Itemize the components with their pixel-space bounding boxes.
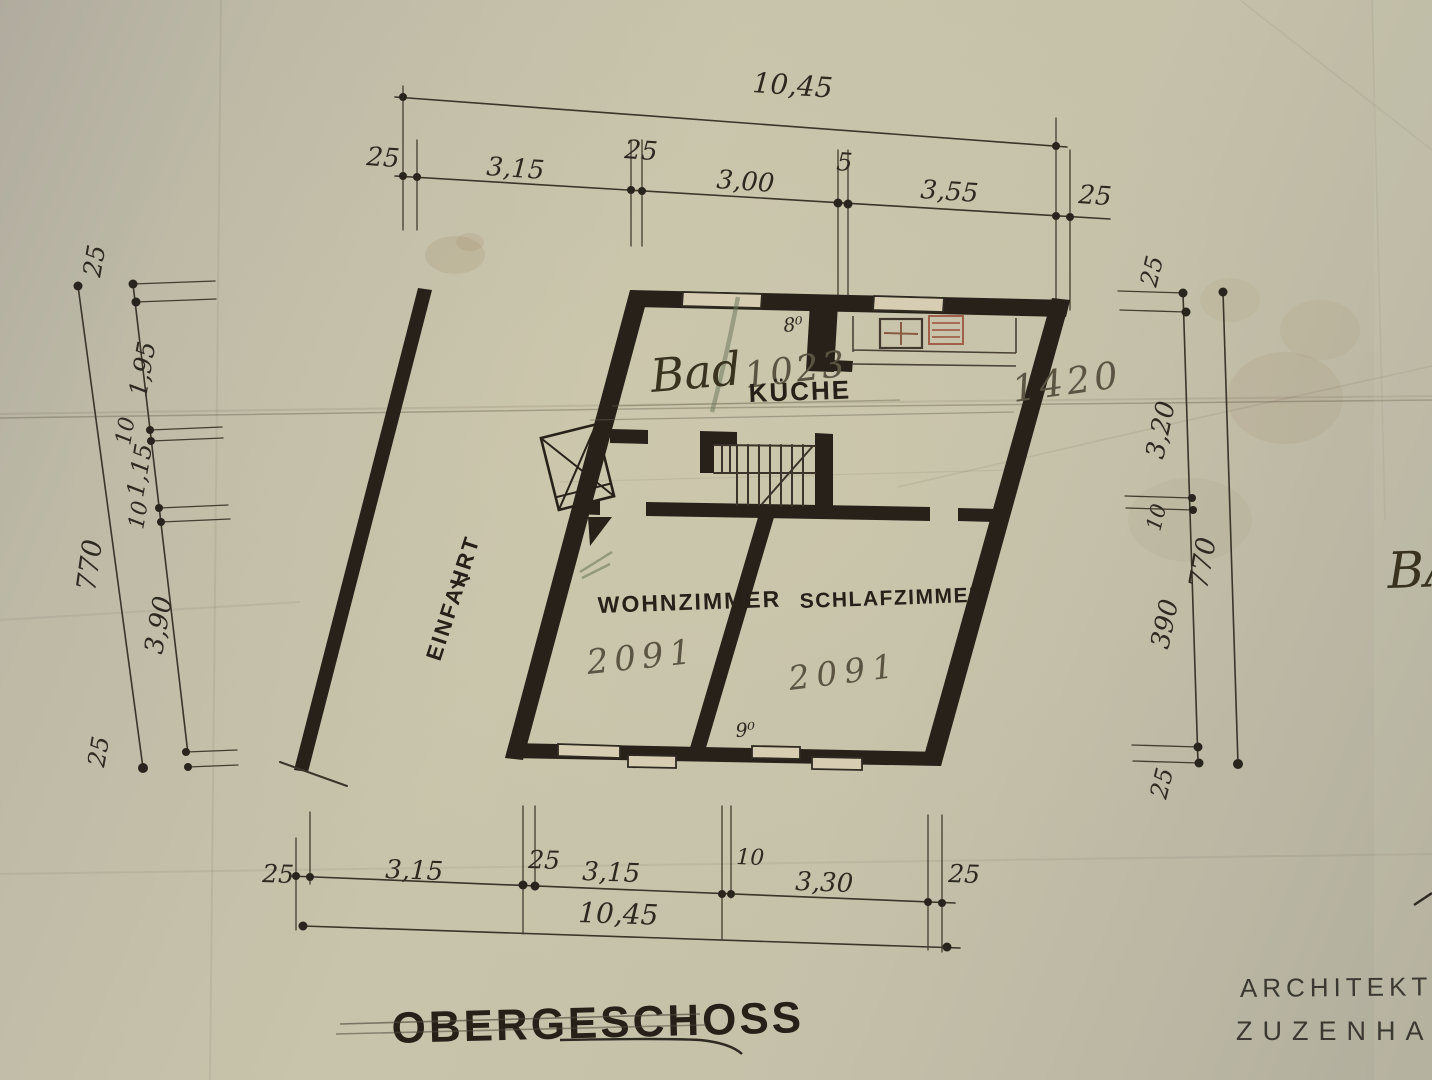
dim-top-25b: 25 bbox=[623, 135, 659, 167]
window-schlafzimmer-2 bbox=[812, 757, 862, 770]
stove-icon bbox=[929, 316, 963, 344]
einfahrt-wall bbox=[280, 288, 432, 786]
dim-top-315: 3,15 bbox=[486, 152, 546, 186]
room-label-einfahrt: EINFAHRT bbox=[421, 532, 485, 663]
dim-left-overall: 770 bbox=[71, 538, 109, 593]
dim-bot-25c: 25 bbox=[947, 859, 981, 889]
window-wohnzimmer-1 bbox=[558, 744, 620, 758]
dimension-chain-bottom: 25 3,15 25 3,15 10 3,30 25 10,45 bbox=[261, 806, 981, 952]
room-label-bad: Bad bbox=[647, 341, 743, 403]
stamp-line-2: ZUZENHAU bbox=[1236, 1016, 1432, 1046]
stamp-line-1: ARCHITEKTUR bbox=[1240, 971, 1432, 1003]
dim-top-355: 3,55 bbox=[920, 175, 980, 209]
dim-bot-25a: 25 bbox=[261, 859, 295, 889]
dim-top-overall: 10,45 bbox=[752, 66, 834, 105]
dim-bot-330: 3,30 bbox=[795, 867, 854, 899]
title-block: OBERGESCHOSS bbox=[336, 993, 805, 1054]
room-number-wohnzimmer: 2091 bbox=[584, 632, 699, 683]
dim-right-25b: 25 bbox=[1144, 765, 1179, 802]
room-label-schlafzimmer: SCHLAFZIMMER bbox=[799, 584, 986, 613]
page-title: OBERGESCHOSS bbox=[391, 993, 805, 1053]
dim-left-10b: 10 bbox=[124, 499, 153, 531]
dim-bot-25b: 25 bbox=[527, 845, 561, 875]
dim-left-25a: 25 bbox=[77, 243, 111, 280]
dim-top-25c: 25 bbox=[1077, 180, 1113, 212]
dim-right-320: 3,20 bbox=[1141, 399, 1182, 462]
dim-left-390: 3,90 bbox=[139, 594, 179, 656]
sink-icon bbox=[880, 319, 922, 348]
room-label-kueche: KÜCHE bbox=[748, 374, 851, 408]
window-bad bbox=[682, 292, 762, 308]
room-number-kueche: 1420 bbox=[1009, 353, 1124, 411]
window-wohnzimmer-2 bbox=[628, 755, 676, 768]
door-width-bad: 8⁰ bbox=[782, 313, 804, 337]
dim-left-195: 1,95 bbox=[123, 339, 161, 399]
dimension-chain-top: 10,45 25 3,15 25 3,00 5 3,55 25 bbox=[365, 66, 1113, 310]
dim-left-10a: 10 bbox=[111, 415, 140, 447]
dim-top-25a: 25 bbox=[365, 142, 401, 174]
dim-top-300: 3,00 bbox=[716, 165, 776, 199]
dim-right-25a: 25 bbox=[1134, 253, 1169, 290]
door-width-rooms: 9⁰ bbox=[735, 719, 757, 742]
dim-bot-315a: 3,15 bbox=[385, 855, 444, 887]
window-schlafzimmer-1 bbox=[752, 746, 800, 759]
room-label-wohnzimmer: WOHNZIMMER bbox=[597, 586, 781, 618]
dim-left-25b: 25 bbox=[82, 734, 115, 770]
dim-bot-overall: 10,45 bbox=[578, 896, 659, 932]
dim-right-390: 390 bbox=[1146, 597, 1186, 652]
door-swing-icon-wohnzimmer bbox=[588, 517, 612, 546]
dim-bot-10: 10 bbox=[736, 845, 765, 871]
dim-left-115: 1,15 bbox=[121, 442, 158, 499]
room-number-schlafzimmer: 2091 bbox=[785, 646, 902, 698]
window-kueche bbox=[873, 296, 944, 312]
floorplan-sheet: 10,45 25 3,15 25 3,00 5 3,55 25 25 1,95 … bbox=[0, 0, 1432, 1080]
dim-bot-315b: 3,15 bbox=[582, 857, 641, 889]
dim-top-5: 5 bbox=[836, 147, 854, 177]
kitchen-fixtures bbox=[853, 316, 1016, 366]
edge-text: BA bbox=[1385, 539, 1432, 600]
